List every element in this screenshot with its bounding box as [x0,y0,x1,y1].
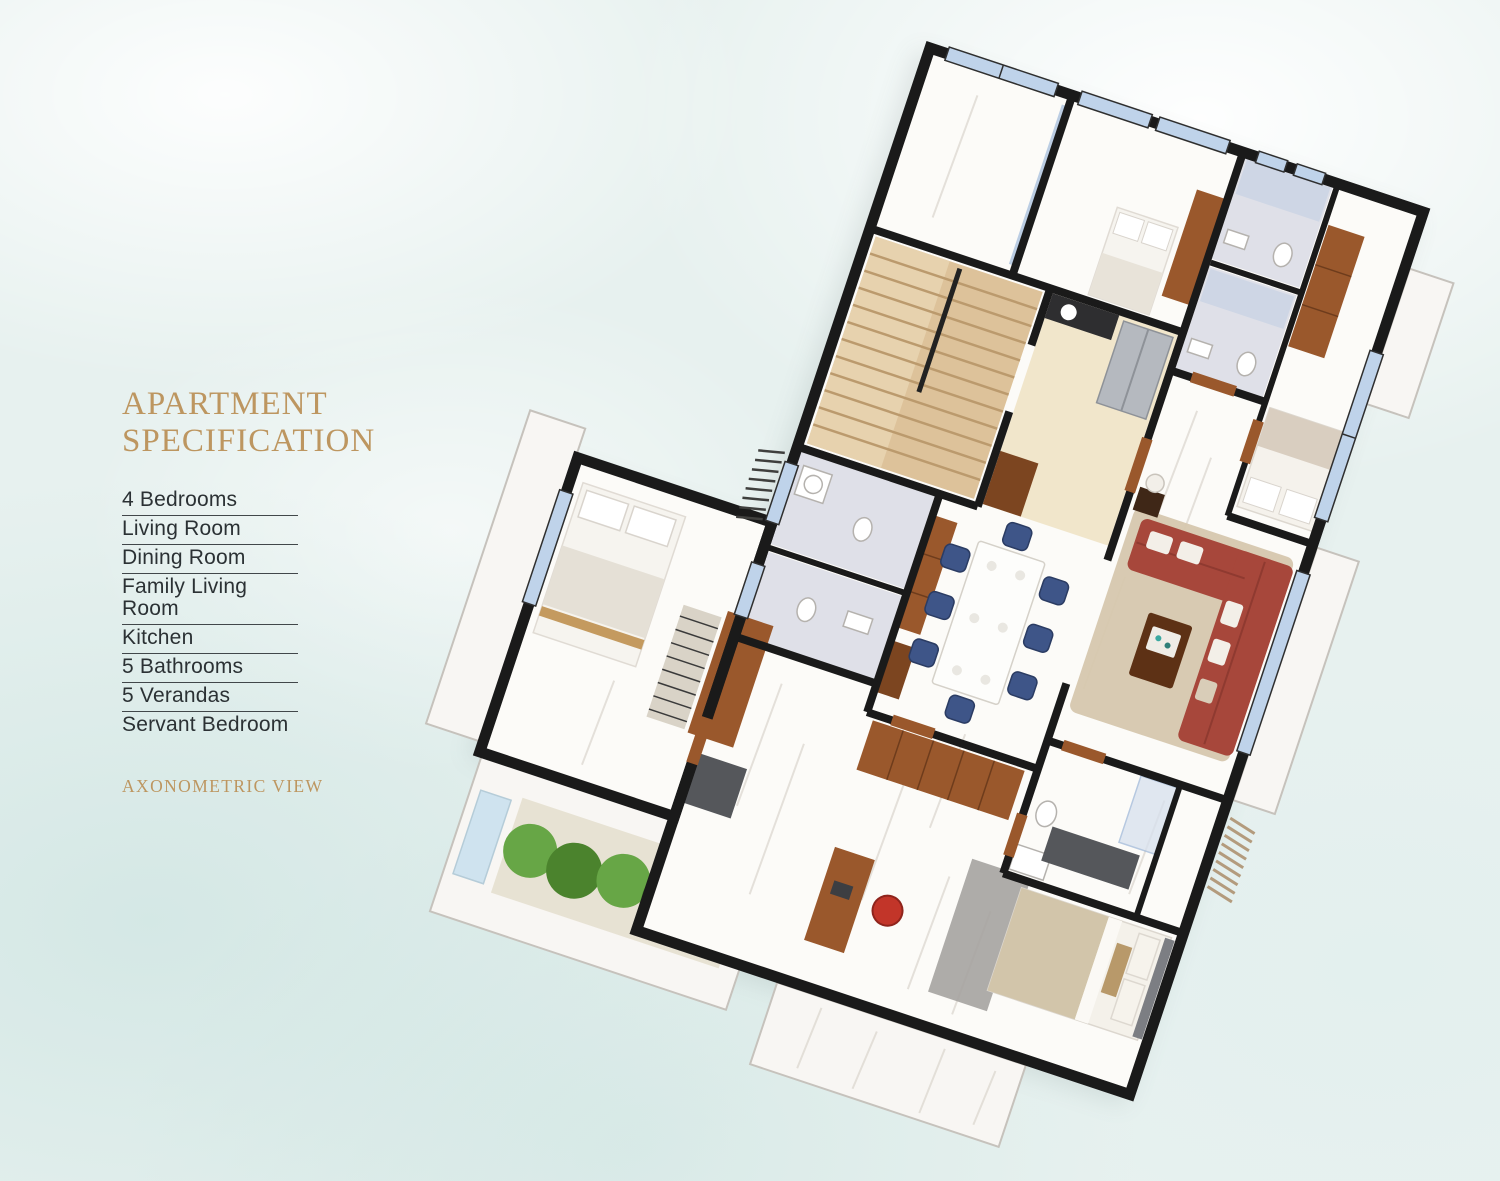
title-line-1: APARTMENT [122,386,402,423]
spec-item: Servant Bedroom [122,712,298,740]
title-line-2: SPECIFICATION [122,423,402,460]
spec-item: Family Living Room [122,574,298,625]
spec-item: 4 Bedrooms [122,487,298,516]
spec-list: 4 Bedrooms Living Room Dining Room Famil… [122,487,402,740]
spec-panel: APARTMENT SPECIFICATION 4 Bedrooms Livin… [122,386,402,797]
spec-item: Dining Room [122,545,298,574]
view-label: AXONOMETRIC VIEW [122,776,402,797]
spec-item: Kitchen [122,625,298,654]
spec-item: 5 Bathrooms [122,654,298,683]
page-title: APARTMENT SPECIFICATION [122,386,402,460]
spec-item: 5 Verandas [122,683,298,712]
brochure-page: APARTMENT SPECIFICATION 4 Bedrooms Livin… [0,0,1500,1181]
spec-item: Living Room [122,516,298,545]
